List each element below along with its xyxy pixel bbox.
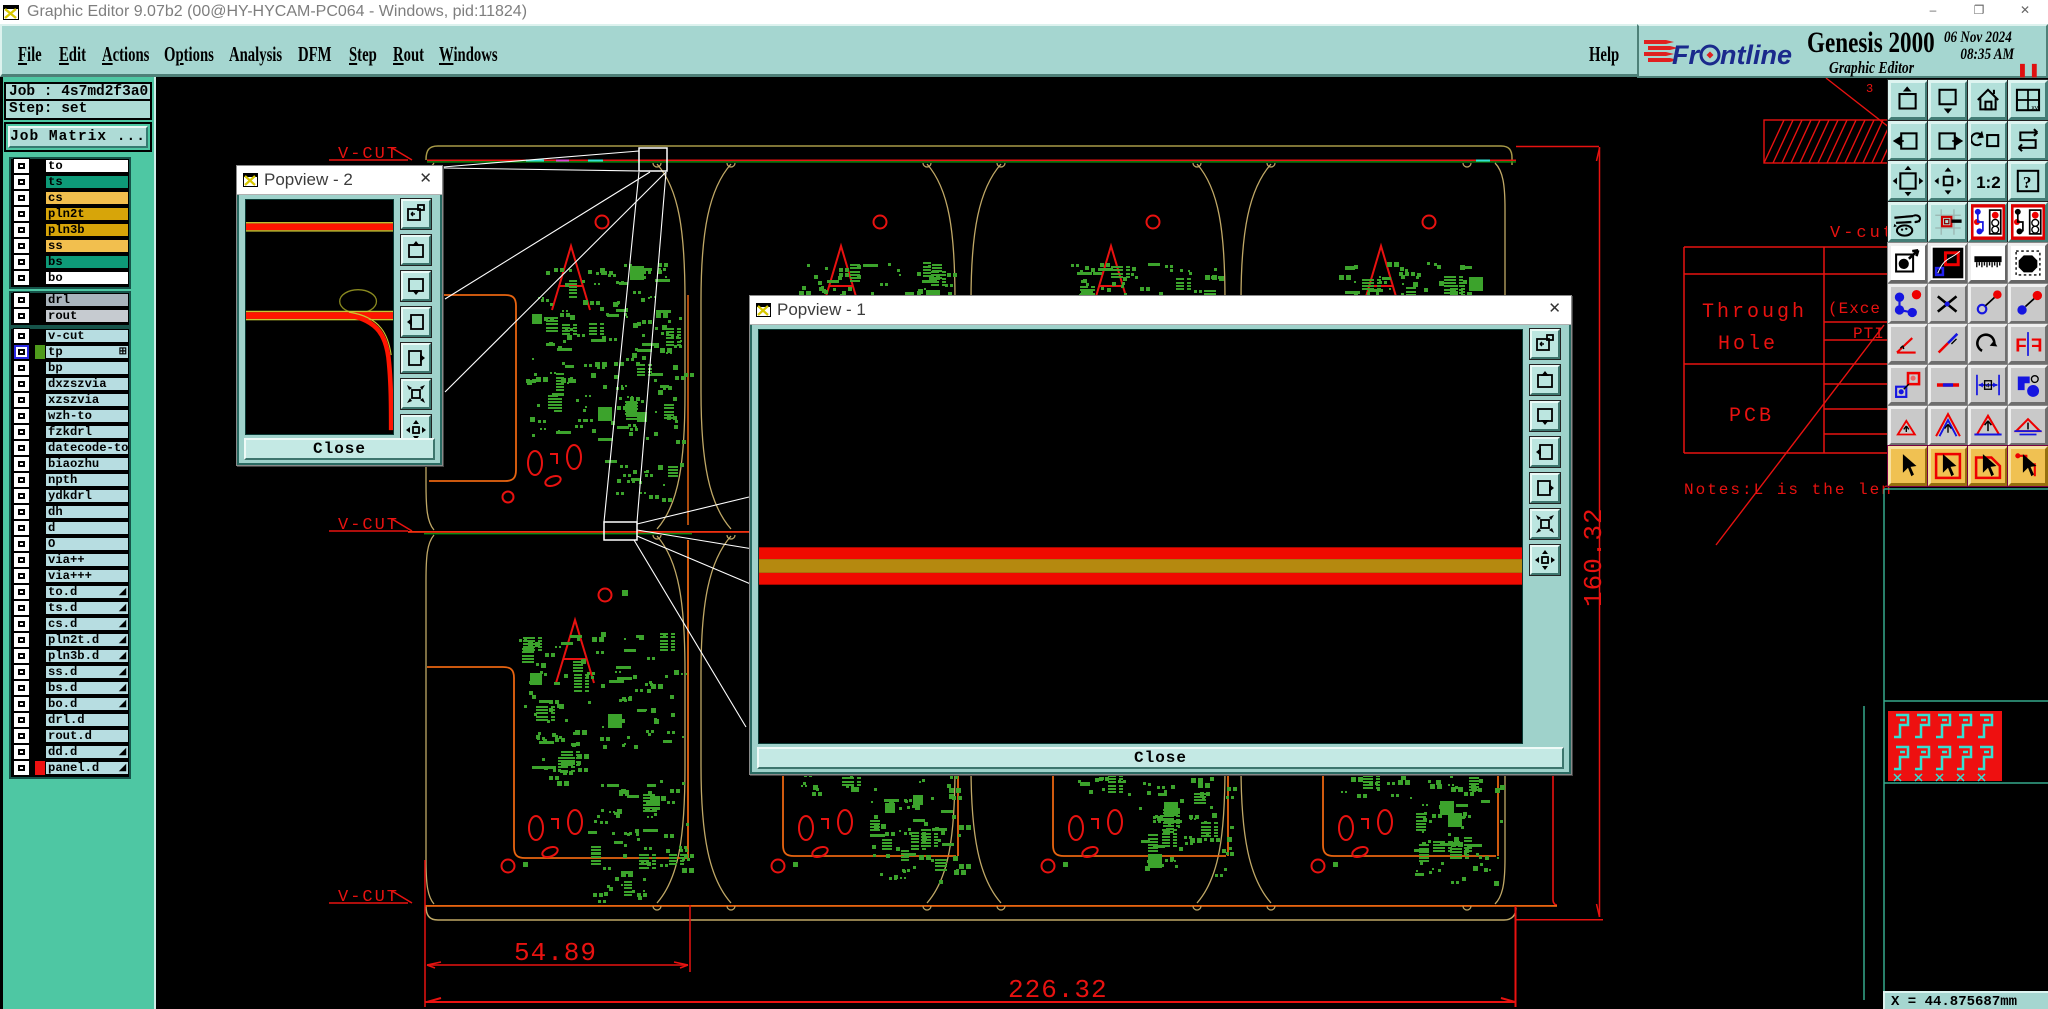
svg-text:54.89: 54.89 [514,938,597,968]
svg-text:3: 3 [1866,82,1873,96]
svg-text:ntline: ntline [1720,40,1792,70]
svg-text:Fr: Fr [1672,40,1700,70]
svg-text:V-cut: V-cut [1830,224,1896,243]
svg-text:Through: Through [1702,301,1807,324]
svg-text:4: 4 [1986,383,1990,390]
svg-text:PTI: PTI [1853,325,1885,343]
svg-text:Hole: Hole [1718,333,1778,356]
svg-text:F: F [2031,335,2042,356]
svg-text:1:2: 1:2 [1976,173,2001,192]
svg-text:(Exce: (Exce [1828,300,1881,318]
svg-text:V-CUT: V-CUT [338,888,399,907]
svg-text:Notes:L is the len: Notes:L is the len [1684,481,1893,499]
svg-text:?: ? [2023,173,2032,192]
svg-text:V-CUT: V-CUT [338,145,399,164]
svg-text:PCB: PCB [1729,405,1774,428]
svg-text:V-CUT: V-CUT [338,516,399,535]
svg-text:160.32: 160.32 [1579,507,1609,607]
svg-text:F: F [2015,335,2026,356]
svg-text:xy: xy [2031,104,2038,111]
svg-text:226.32: 226.32 [1008,975,1108,1005]
